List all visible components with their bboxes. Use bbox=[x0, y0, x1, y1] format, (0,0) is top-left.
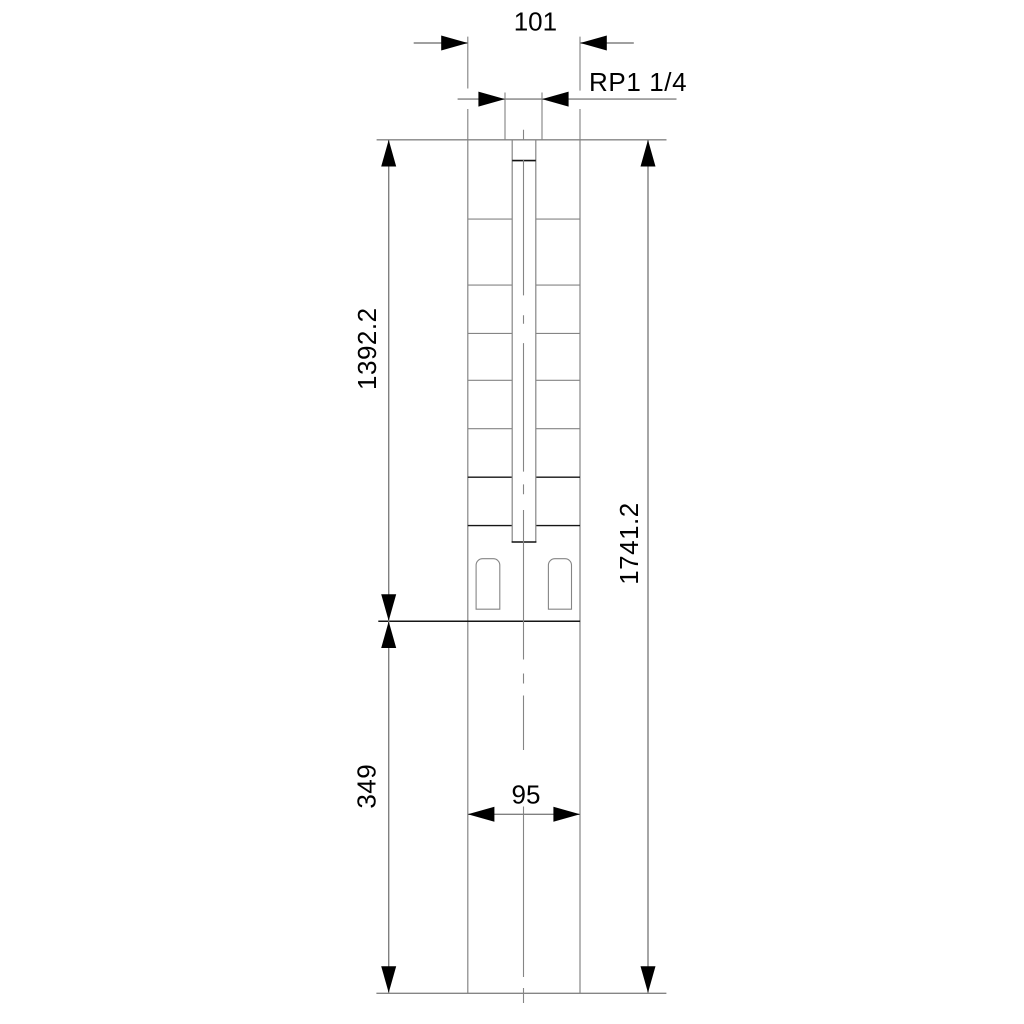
svg-text:1741.2: 1741.2 bbox=[614, 502, 644, 585]
svg-text:95: 95 bbox=[512, 780, 541, 810]
svg-text:101: 101 bbox=[514, 7, 557, 37]
svg-text:1392.2: 1392.2 bbox=[352, 307, 382, 390]
svg-text:349: 349 bbox=[352, 764, 382, 809]
svg-text:RP1 1/4: RP1 1/4 bbox=[589, 67, 687, 97]
